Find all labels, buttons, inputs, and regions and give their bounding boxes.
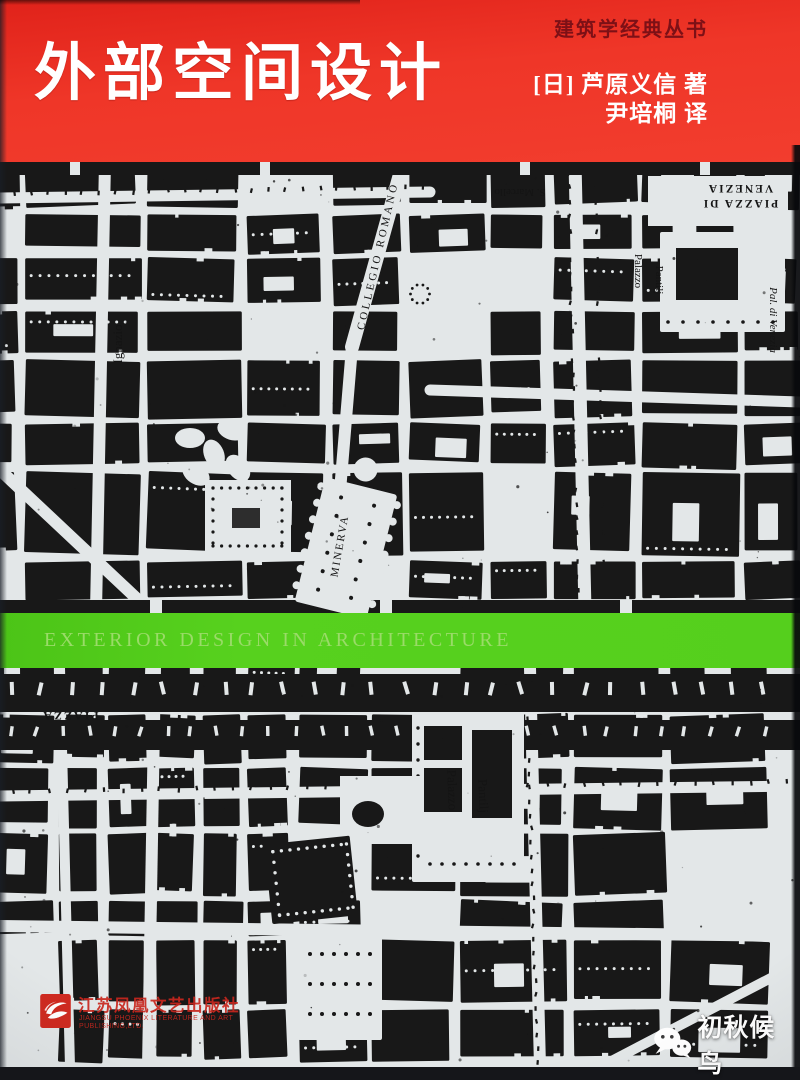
map-label-palazzo: Palazzo <box>442 745 461 836</box>
map-label-piazza: PIAZZA <box>10 708 130 723</box>
map-label-pantilj: Pantilj <box>473 751 492 842</box>
publisher-name-cn: 江苏凤凰文艺出版社 <box>78 992 240 1016</box>
publisher-name-en-line1: JIANGSU PHOENIX LITERATURE AND ART <box>79 1015 233 1023</box>
map-label-pal-di-venezia: Pal. di Venezia <box>767 265 779 375</box>
map-label-piazza-di-venezia: PIAZZA DI VENEZIA <box>670 180 800 210</box>
map-label-venezia: VENEZIA <box>670 180 800 195</box>
subtitle-band: EXTERIOR DESIGN IN ARCHITECTURE <box>0 613 800 668</box>
map-label-palazzo: Palazzo <box>632 236 644 306</box>
series-title: 建筑学经典丛书 <box>554 13 708 42</box>
cover-header: 建筑学经典丛书 外部空间设计 [日] 芦原义信 著 尹培桐 译 <box>0 0 800 162</box>
map-label-ignazio: Ignazio <box>110 294 126 394</box>
publisher-name-en-line2: PUBLISHING,LTD. <box>79 1023 233 1031</box>
translator-line: 尹培桐 译 <box>533 99 708 128</box>
publisher-name-en: JIANGSU PHOENIX LITERATURE AND ART PUBLI… <box>79 1015 233 1031</box>
map-label-pantilj: Pantilj <box>653 245 665 315</box>
author-line: [日] 芦原义信 著 <box>533 70 708 99</box>
book-title: 外部空间设计 <box>34 22 448 112</box>
book-cover: 建筑学经典丛书 外部空间设计 [日] 芦原义信 著 尹培桐 译 COLLEGIO… <box>0 0 800 1067</box>
wechat-icon <box>652 1025 693 1063</box>
phoenix-icon <box>40 994 71 1028</box>
map-label-s-marcello: S. Marcello <box>455 186 585 198</box>
watermark: 初秋候鸟 <box>652 1008 800 1080</box>
subtitle-text: EXTERIOR DESIGN IN ARCHITECTURE <box>44 613 512 668</box>
author-block: [日] 芦原义信 著 尹培桐 译 <box>533 70 708 128</box>
map-upper: COLLEGIO ROMANO Ignazio MINERVA PIAZZA D… <box>0 162 800 613</box>
map-label-piazza-di: PIAZZA DI <box>670 195 800 210</box>
watermark-text: 初秋候鸟 <box>697 1008 800 1080</box>
